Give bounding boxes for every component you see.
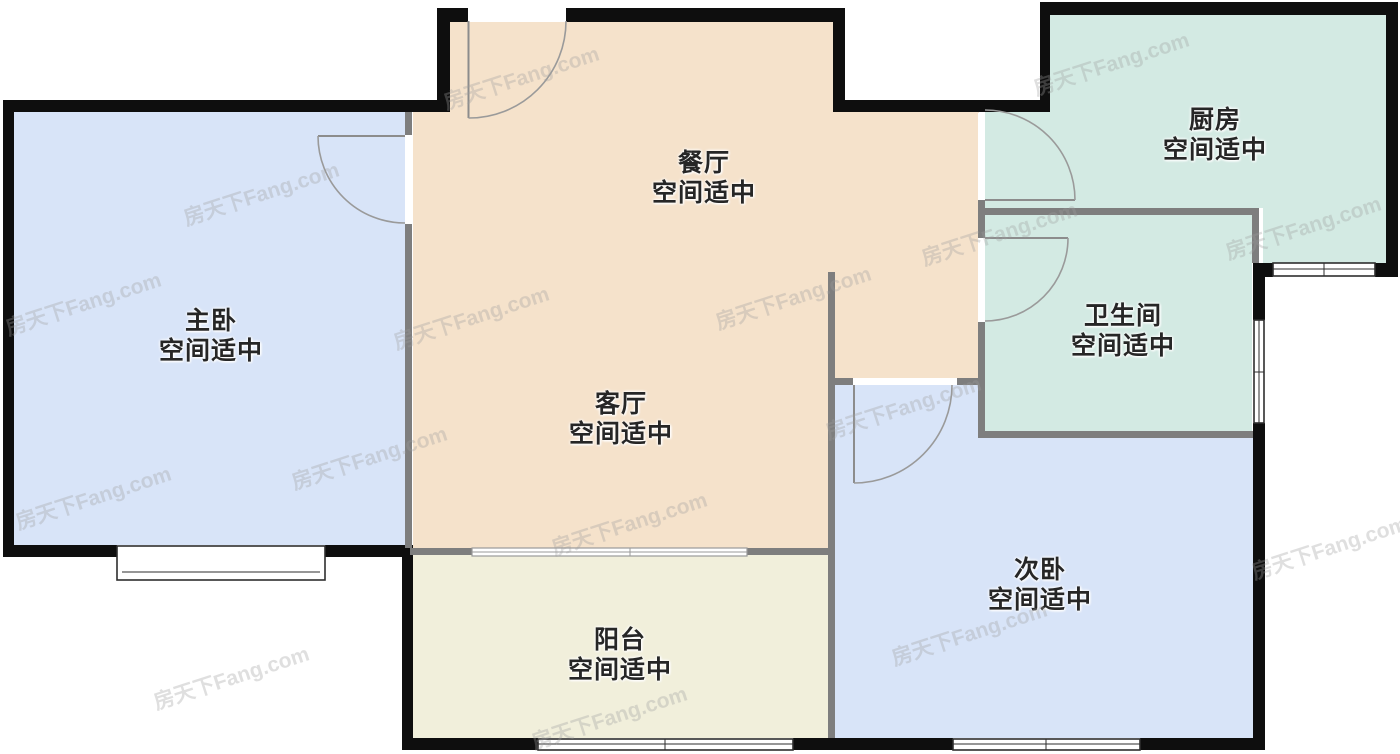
room-name: 厨房 (1163, 105, 1267, 135)
second-bedroom-label: 次卧 空间适中 (988, 555, 1092, 615)
room-name: 卫生间 (1071, 301, 1175, 331)
room-name: 主卧 (159, 306, 263, 336)
wall-segment (843, 100, 1050, 112)
dining-room-label: 餐厅 空间适中 (652, 148, 756, 208)
room-status: 空间适中 (652, 178, 756, 208)
wall-segment (3, 545, 117, 557)
room-name: 客厅 (569, 389, 673, 419)
room-name: 次卧 (988, 555, 1092, 585)
partition-segment (978, 200, 985, 238)
room-name: 阳台 (568, 625, 672, 655)
wall-segment (402, 738, 538, 750)
wall-segment (3, 100, 449, 112)
wall-segment (566, 8, 845, 22)
room-name: 餐厅 (652, 148, 756, 178)
door-opening (853, 378, 957, 385)
partition-segment (405, 112, 412, 135)
wall-segment (793, 738, 953, 750)
bathroom-label: 卫生间 空间适中 (1071, 301, 1175, 361)
room-status: 空间适中 (569, 419, 673, 449)
living-room-label: 客厅 空间适中 (569, 389, 673, 449)
wall-segment (1253, 263, 1265, 320)
partition-segment (405, 224, 412, 548)
master-bedroom-label: 主卧 空间适中 (159, 306, 263, 366)
wall-segment (833, 8, 845, 112)
room-status: 空间适中 (159, 336, 263, 366)
wall-segment (1040, 2, 1050, 112)
partition-segment (828, 548, 835, 738)
door-opening (468, 9, 566, 21)
partition-segment (978, 322, 985, 432)
wall-segment (1140, 738, 1265, 750)
wall-segment (402, 548, 413, 750)
bay-window (117, 546, 325, 580)
wall-segment (1253, 423, 1265, 750)
wall-segment (325, 545, 413, 557)
wall-segment (437, 8, 468, 22)
door-opening (405, 135, 412, 224)
wall-segment (1375, 263, 1386, 277)
partition-segment (982, 208, 1258, 215)
kitchen-label: 厨房 空间适中 (1163, 105, 1267, 165)
partition-segment (828, 272, 835, 548)
room-status: 空间适中 (988, 585, 1092, 615)
room-status: 空间适中 (568, 655, 672, 685)
floorplan: 主卧 空间适中 餐厅 空间适中 厨房 空间适中 卫生间 空间适中 客厅 空间适中… (0, 0, 1400, 754)
partition-segment (747, 548, 833, 555)
partition-segment (410, 548, 472, 555)
partition-segment (978, 431, 1253, 438)
wall-segment (437, 8, 450, 112)
partition-segment (1252, 208, 1259, 263)
room-status: 空间适中 (1163, 135, 1267, 165)
wall-segment (3, 100, 14, 557)
wall-segment (1386, 2, 1398, 277)
door-opening (978, 238, 985, 322)
door-opening (978, 113, 985, 200)
balcony-label: 阳台 空间适中 (568, 625, 672, 685)
room-status: 空间适中 (1071, 331, 1175, 361)
partition-segment (835, 378, 853, 385)
wall-segment (1040, 2, 1398, 15)
